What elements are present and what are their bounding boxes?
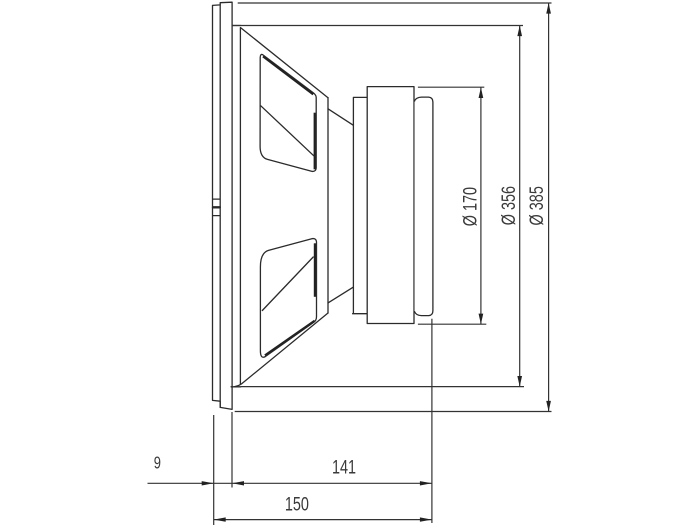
svg-text:Ø 385: Ø 385 <box>525 186 548 225</box>
svg-text:Ø 356: Ø 356 <box>497 186 520 225</box>
svg-text:Ø 170: Ø 170 <box>458 187 481 226</box>
svg-text:9: 9 <box>154 454 161 473</box>
svg-text:150: 150 <box>285 492 309 515</box>
svg-text:141: 141 <box>332 455 356 478</box>
